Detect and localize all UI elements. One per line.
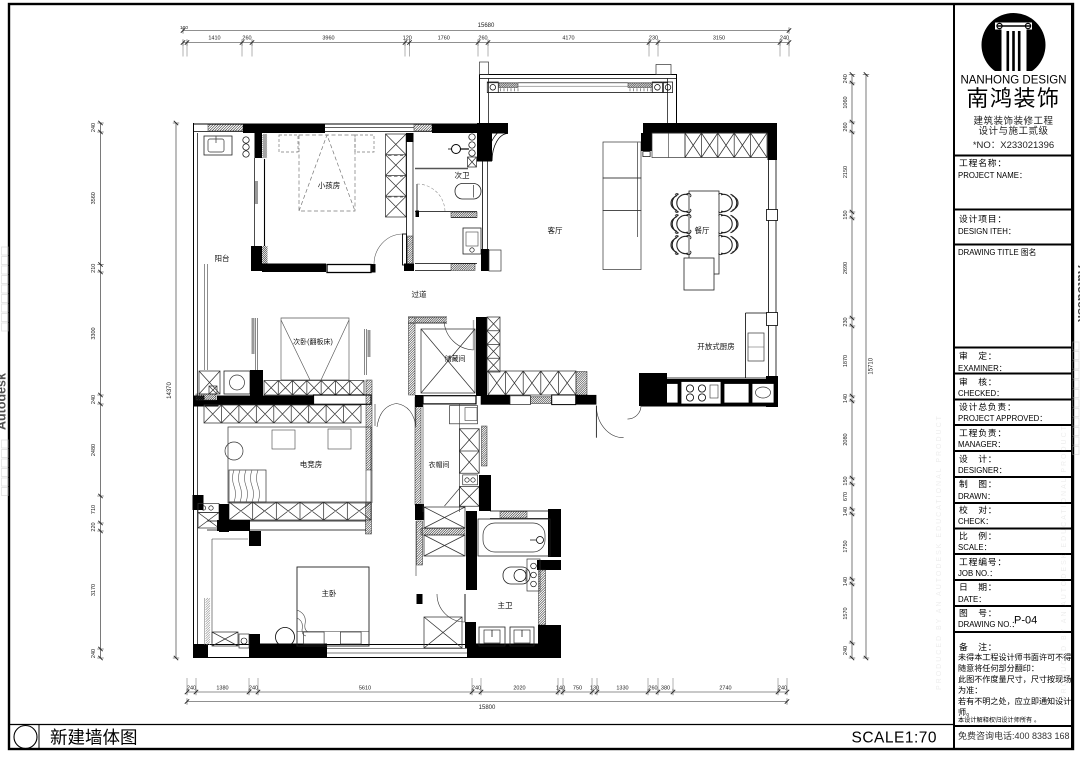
svg-text:1060: 1060 [843, 96, 849, 108]
svg-text:主卫: 主卫 [498, 600, 513, 610]
svg-text:设计与施工贰级: 设计与施工贰级 [978, 125, 1048, 137]
svg-text:工程编号：: 工程编号： [959, 556, 1007, 567]
svg-text:240: 240 [91, 649, 97, 658]
svg-text:比 例：: 比 例： [959, 530, 997, 541]
svg-text:P-04: P-04 [1014, 615, 1037, 627]
svg-text:客厅: 客厅 [548, 225, 563, 235]
svg-text:100: 100 [180, 25, 188, 31]
svg-text:2740: 2740 [719, 686, 731, 692]
svg-text:设 计：: 设 计： [959, 453, 997, 464]
svg-text:衣帽间: 衣帽间 [429, 460, 450, 469]
svg-text:750: 750 [573, 686, 582, 692]
svg-text:230: 230 [843, 317, 849, 326]
svg-text:次卫: 次卫 [455, 170, 470, 180]
svg-text:14370: 14370 [167, 381, 173, 398]
svg-text:SCALE：: SCALE： [958, 543, 991, 552]
svg-text:工程名称：: 工程名称： [959, 157, 1007, 168]
svg-text:PROJECT APPROVED：: PROJECT APPROVED： [958, 414, 1047, 423]
svg-text:南鸿装饰: 南鸿装饰 [966, 86, 1060, 111]
svg-text:240: 240 [187, 686, 196, 692]
svg-text:未得本工程设计师书面许可不得: 未得本工程设计师书面许可不得 [958, 652, 1071, 662]
svg-text:餐厅: 餐厅 [695, 226, 710, 235]
svg-text:230: 230 [649, 36, 658, 42]
svg-text:制 图：: 制 图： [959, 478, 997, 489]
svg-text:15680: 15680 [478, 23, 495, 29]
svg-text:若有不明之处，应立即通知设计: 若有不明之处，应立即通知设计 [958, 696, 1071, 706]
svg-text:3960: 3960 [322, 36, 334, 42]
svg-text:140: 140 [843, 507, 849, 516]
svg-text:15710: 15710 [869, 357, 875, 374]
svg-text:JOB NO.：: JOB NO.： [958, 569, 997, 578]
svg-text:150: 150 [843, 210, 849, 219]
svg-text:240: 240 [843, 74, 849, 83]
svg-text:240: 240 [249, 686, 258, 692]
svg-text:120: 120 [403, 36, 412, 42]
svg-text:240: 240 [91, 395, 97, 404]
svg-text:140: 140 [556, 686, 565, 692]
svg-text:1380: 1380 [216, 686, 228, 692]
svg-text:2150: 2150 [843, 166, 849, 178]
svg-text:开放式厨房: 开放式厨房 [697, 341, 735, 351]
svg-text:SCALE1:70: SCALE1:70 [852, 730, 938, 747]
svg-text:140: 140 [843, 577, 849, 586]
svg-text:DRAWING TITLE 图名: DRAWING TITLE 图名 [958, 247, 1036, 257]
svg-text:1760: 1760 [438, 36, 450, 42]
svg-text:2480: 2480 [91, 444, 97, 456]
svg-text:240: 240 [843, 646, 849, 655]
svg-text:审 定：: 审 定： [959, 350, 997, 361]
svg-text:1750: 1750 [843, 540, 849, 552]
svg-text:设计项目：: 设计项目： [959, 213, 1007, 224]
svg-text:备 注：: 备 注： [959, 641, 997, 652]
svg-text:免费咨询电话:400 8383 168: 免费咨询电话:400 8383 168 [958, 730, 1070, 741]
svg-text:1870: 1870 [843, 355, 849, 367]
svg-text:260: 260 [648, 686, 657, 692]
svg-text:为准：: 为准： [958, 685, 982, 695]
svg-text:15800: 15800 [479, 705, 496, 711]
svg-text:过道: 过道 [412, 289, 427, 299]
svg-text:EXAMINER：: EXAMINER： [958, 364, 1007, 373]
svg-text:380: 380 [661, 686, 670, 692]
svg-text:工程负责：: 工程负责： [959, 427, 1007, 438]
svg-text:2020: 2020 [513, 686, 525, 692]
svg-text:DRAWN：: DRAWN： [958, 492, 995, 501]
svg-text:DESIGNER：: DESIGNER： [958, 466, 1007, 475]
svg-text:3150: 3150 [713, 36, 725, 42]
svg-text:150: 150 [843, 476, 849, 485]
svg-text:2690: 2690 [843, 262, 849, 274]
svg-text:240: 240 [778, 686, 787, 692]
svg-text:主卧: 主卧 [322, 588, 337, 598]
svg-text:3300: 3300 [91, 327, 97, 339]
svg-text:1330: 1330 [616, 686, 628, 692]
svg-text:5610: 5610 [359, 686, 371, 692]
svg-text:1410: 1410 [208, 36, 220, 42]
svg-text:阳台: 阳台 [215, 253, 230, 263]
svg-text:DESIGN ITEH：: DESIGN ITEH： [958, 227, 1016, 236]
svg-text:设计总负责：: 设计总负责： [959, 401, 1017, 412]
svg-text:MANAGER：: MANAGER： [958, 440, 1005, 449]
svg-text:NANHONG DESIGN: NANHONG DESIGN [960, 75, 1066, 87]
svg-text:PRODUCED BY AN AUTODESK EDUCAT: PRODUCED BY AN AUTODESK EDUCATIONAL PROD… [1061, 424, 1068, 700]
svg-text:260: 260 [478, 36, 487, 42]
svg-text:日 期：: 日 期： [959, 582, 997, 592]
svg-text:Autodesk: Autodesk [0, 373, 9, 430]
svg-text:2080: 2080 [843, 433, 849, 445]
svg-text:CHECKED：: CHECKED： [958, 389, 1004, 398]
svg-text:240: 240 [472, 686, 481, 692]
svg-text:随意将任何部分翻印：: 随意将任何部分翻印： [958, 663, 1039, 673]
svg-text:校 对：: 校 对： [959, 504, 997, 515]
svg-text:4170: 4170 [562, 36, 574, 42]
svg-text:图 号：: 图 号： [959, 608, 997, 618]
svg-text:审 核：: 审 核： [959, 376, 997, 387]
svg-text:260: 260 [242, 36, 251, 42]
svg-text:PRODUCED BY AN AUTODESK EDUCAT: PRODUCED BY AN AUTODESK EDUCATIONAL PROD… [936, 414, 943, 690]
svg-text:210: 210 [91, 264, 97, 273]
svg-text:电竞房: 电竞房 [300, 459, 323, 469]
svg-text:1570: 1570 [843, 607, 849, 619]
svg-text:260: 260 [843, 122, 849, 131]
svg-text:240: 240 [91, 123, 97, 132]
svg-text:CHECK：: CHECK： [958, 517, 993, 526]
svg-text:DRAWING NO.：: DRAWING NO.： [958, 620, 1019, 629]
svg-text:710: 710 [91, 505, 97, 514]
svg-text:本设计解释权归设计师所有 。: 本设计解释权归设计师所有 。 [958, 716, 1040, 724]
svg-text:Autodesk: Autodesk [1075, 265, 1080, 322]
svg-text:*NO：X233021396: *NO：X233021396 [973, 140, 1054, 151]
svg-text:DATE：: DATE： [958, 595, 986, 604]
svg-text:新建墙体图: 新建墙体图 [50, 728, 138, 748]
svg-text:次卧(翻板床): 次卧(翻板床) [293, 337, 333, 346]
svg-text:师。: 师。 [958, 707, 974, 717]
svg-text:140: 140 [843, 394, 849, 403]
svg-text:小孩房: 小孩房 [318, 180, 341, 190]
svg-text:3560: 3560 [91, 192, 97, 204]
svg-text:130: 130 [590, 686, 599, 692]
svg-text:670: 670 [843, 492, 849, 501]
svg-text:3170: 3170 [91, 584, 97, 596]
svg-text:240: 240 [780, 36, 789, 42]
svg-text:PROJECT NAME：: PROJECT NAME： [958, 171, 1027, 180]
svg-text:此图不作度量尺寸，尺寸按现场: 此图不作度量尺寸，尺寸按现场 [958, 674, 1071, 684]
svg-text:220: 220 [91, 522, 97, 531]
